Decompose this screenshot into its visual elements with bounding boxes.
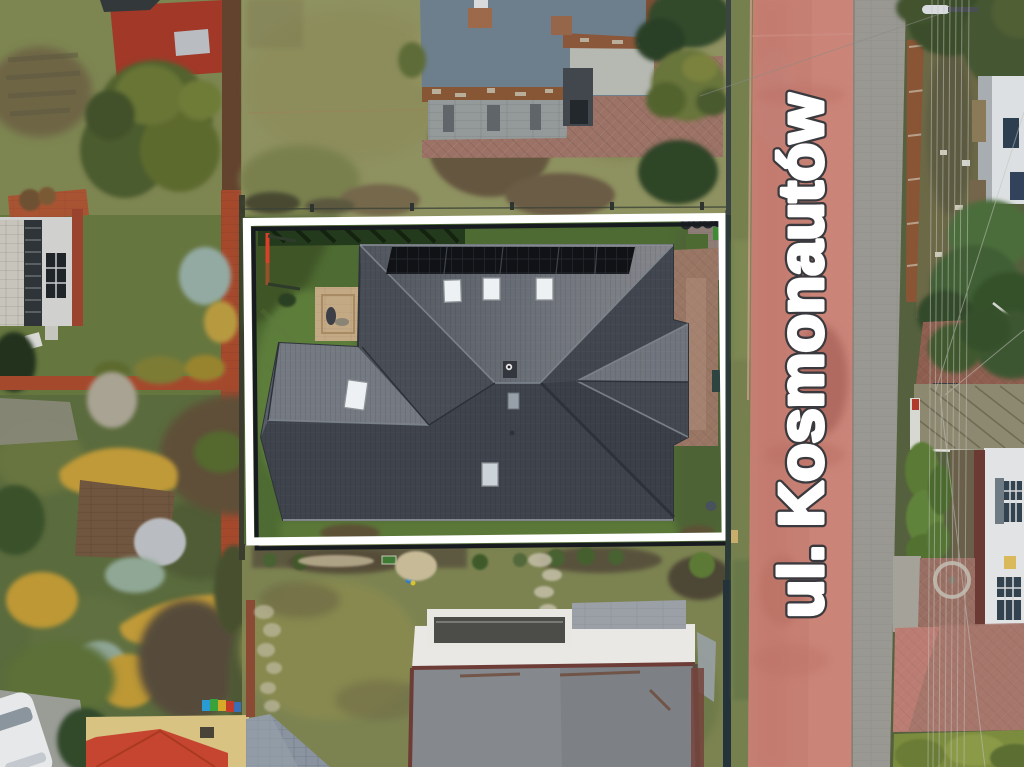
svg-text:ul. Kosmonautów: ul. Kosmonautów: [768, 93, 837, 618]
